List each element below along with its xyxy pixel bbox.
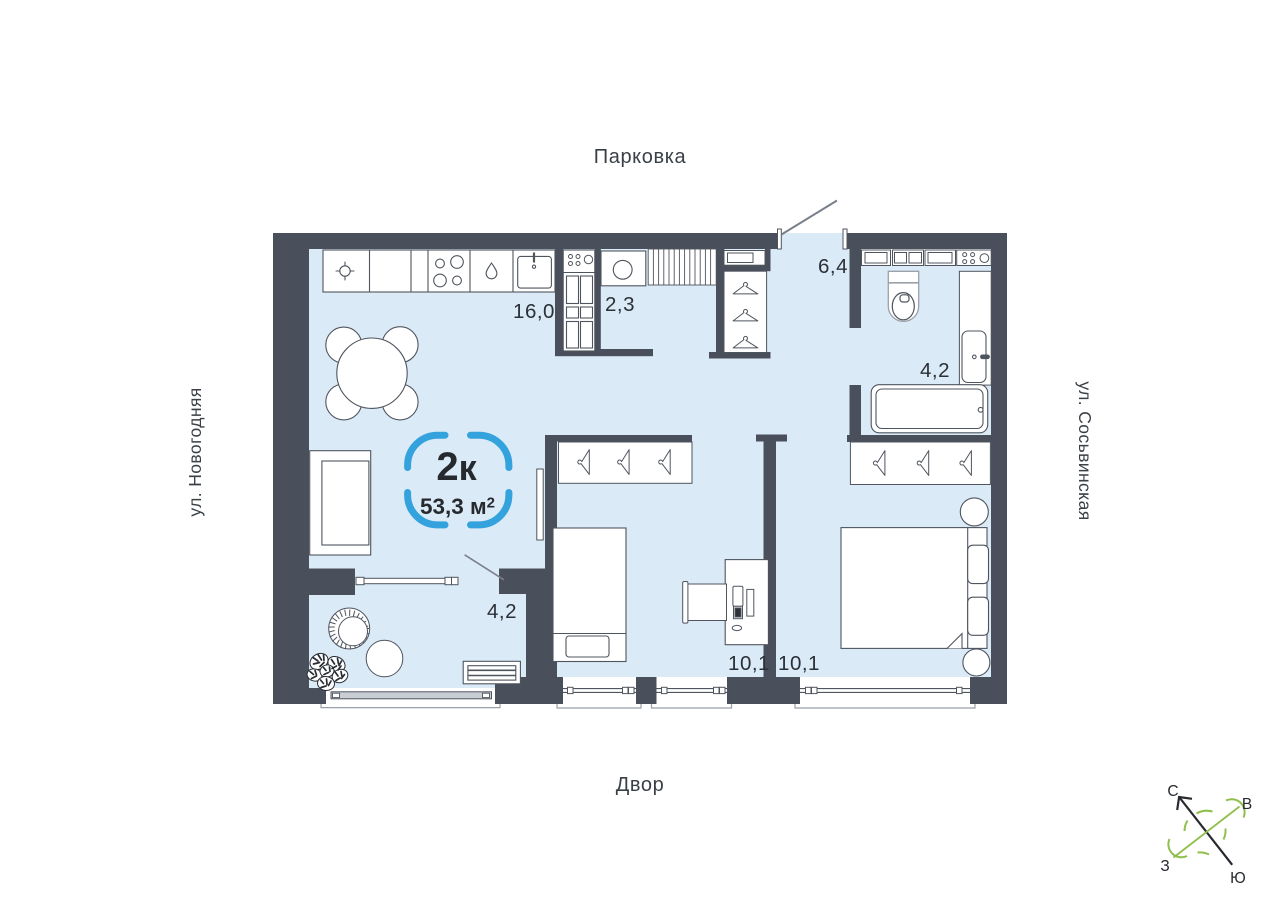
svg-text:Парковка: Парковка	[594, 146, 687, 168]
svg-text:2к: 2к	[436, 445, 477, 489]
svg-text:4,2: 4,2	[487, 600, 517, 623]
svg-text:6,4: 6,4	[818, 255, 848, 278]
svg-text:53,3 м2: 53,3 м2	[420, 494, 495, 519]
svg-text:10,1: 10,1	[778, 652, 820, 675]
svg-text:10,1: 10,1	[728, 652, 770, 675]
svg-text:Ю: Ю	[1230, 870, 1246, 887]
svg-text:16,0: 16,0	[513, 300, 555, 323]
svg-text:В: В	[1242, 796, 1252, 813]
svg-text:З: З	[1160, 858, 1169, 875]
svg-text:С: С	[1167, 783, 1178, 800]
svg-text:2,3: 2,3	[605, 293, 635, 316]
svg-text:Двор: Двор	[616, 774, 665, 796]
svg-text:ул. Сосьвинская: ул. Сосьвинская	[1075, 381, 1095, 520]
svg-text:4,2: 4,2	[920, 359, 950, 382]
svg-text:ул. Новогодняя: ул. Новогодняя	[185, 387, 205, 516]
